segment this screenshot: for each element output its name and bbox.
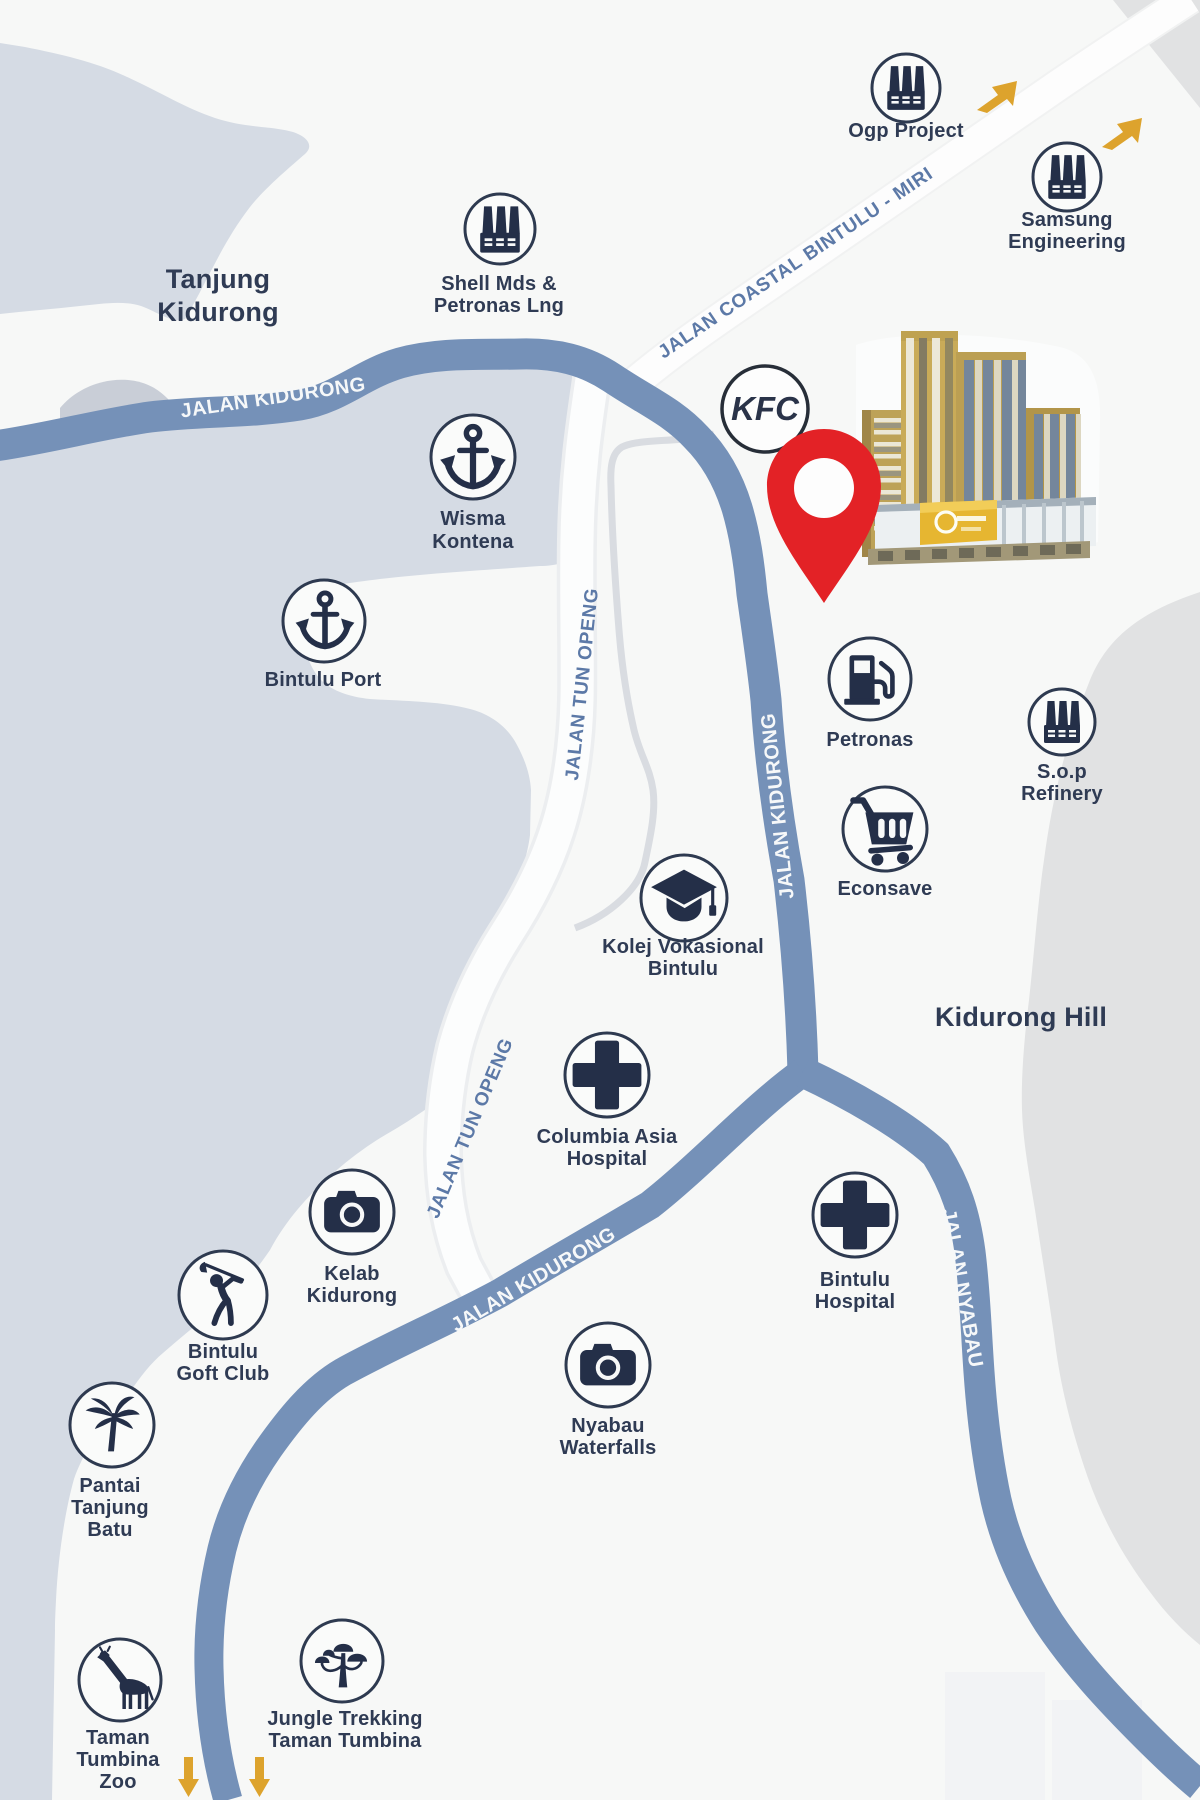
svg-text:Tanjung: Tanjung [166,264,270,294]
svg-text:Pantai: Pantai [79,1475,140,1497]
svg-text:Kolej Vokasional: Kolej Vokasional [602,936,764,958]
svg-text:Columbia Asia: Columbia Asia [537,1126,678,1148]
svg-text:Kidurong: Kidurong [157,297,279,327]
svg-text:Taman Tumbina: Taman Tumbina [269,1730,423,1752]
svg-text:Tumbina: Tumbina [76,1749,160,1771]
svg-text:Bintulu Port: Bintulu Port [265,669,382,691]
svg-text:Goft Club: Goft Club [177,1363,270,1385]
svg-text:Bintulu: Bintulu [648,958,718,980]
svg-text:Zoo: Zoo [99,1771,136,1793]
svg-text:Samsung: Samsung [1021,209,1112,231]
svg-text:Kelab: Kelab [324,1263,379,1285]
svg-text:Econsave: Econsave [838,878,933,900]
svg-text:Bintulu: Bintulu [820,1269,890,1291]
svg-text:Batu: Batu [87,1519,132,1541]
svg-text:Ogp Project: Ogp Project [848,120,964,142]
svg-text:Wisma: Wisma [440,508,506,530]
svg-text:Refinery: Refinery [1021,783,1103,805]
svg-text:Hospital: Hospital [815,1291,896,1313]
svg-text:Petronas: Petronas [826,729,913,751]
svg-text:Kidurong: Kidurong [307,1285,397,1307]
svg-text:Shell Mds &: Shell Mds & [441,273,557,295]
svg-text:Hospital: Hospital [567,1148,648,1170]
svg-text:KFC: KFC [731,390,800,427]
svg-text:Kidurong Hill: Kidurong Hill [935,1002,1107,1032]
svg-text:S.o.p: S.o.p [1037,761,1087,783]
svg-text:Jungle Trekking: Jungle Trekking [267,1708,422,1730]
svg-text:Tanjung: Tanjung [71,1497,149,1519]
svg-text:Nyabau: Nyabau [571,1415,644,1437]
svg-text:Taman: Taman [86,1727,150,1749]
svg-text:Waterfalls: Waterfalls [560,1437,657,1459]
svg-text:Engineering: Engineering [1008,231,1126,253]
svg-text:Petronas Lng: Petronas Lng [434,295,564,317]
svg-text:Kontena: Kontena [432,531,514,553]
svg-text:Bintulu: Bintulu [188,1341,258,1363]
